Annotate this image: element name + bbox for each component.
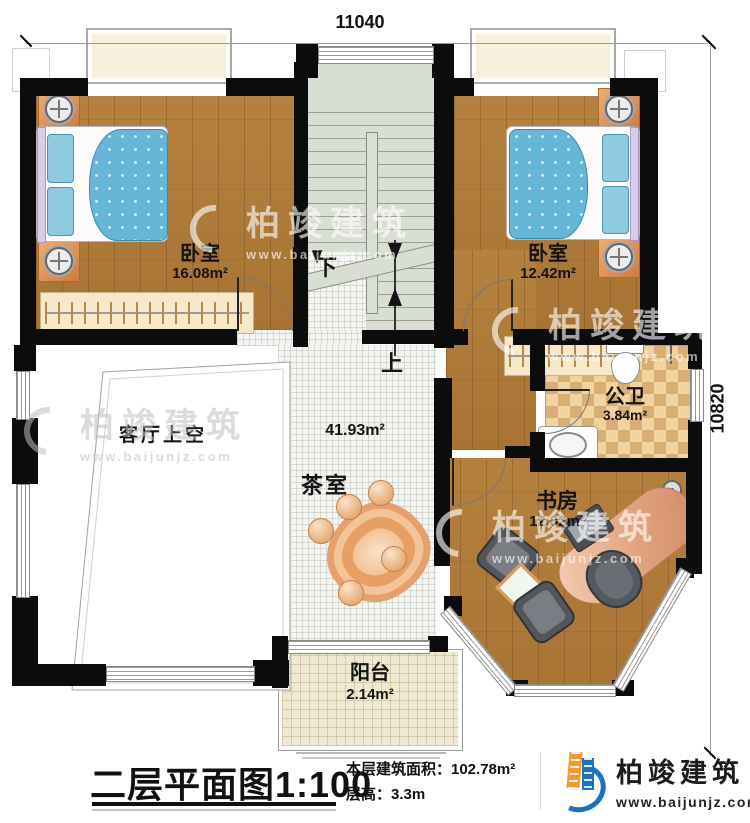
wall bbox=[434, 254, 454, 348]
wall bbox=[428, 636, 448, 652]
bed-duvet bbox=[509, 129, 588, 239]
bed-headboard bbox=[630, 127, 639, 241]
living-room-void-opening bbox=[70, 355, 300, 695]
wall bbox=[14, 345, 36, 371]
nightstand bbox=[38, 240, 80, 282]
wall bbox=[640, 78, 658, 338]
room-label-bathroom: 公卫 bbox=[585, 386, 665, 408]
bed-right bbox=[506, 126, 640, 240]
pillow bbox=[602, 134, 629, 182]
window bbox=[106, 666, 255, 682]
wall bbox=[12, 418, 38, 484]
logo-company-name: 柏竣建筑 bbox=[616, 751, 750, 790]
wall bbox=[12, 664, 106, 686]
logo-website: www.baijunjz.com bbox=[616, 794, 750, 810]
room-area-bedroom-left: 16.08m² bbox=[150, 266, 250, 283]
arrow-down-icon bbox=[388, 243, 402, 261]
room-label-study: 书房 bbox=[512, 490, 602, 513]
wall bbox=[686, 458, 702, 574]
company-logo-icon bbox=[554, 750, 608, 808]
shower-hose bbox=[670, 344, 672, 364]
wall bbox=[434, 378, 452, 454]
room-label-tea-room: 茶室 bbox=[280, 474, 370, 498]
wall bbox=[294, 62, 308, 254]
lamp-icon bbox=[45, 95, 73, 123]
bed-headboard bbox=[37, 127, 46, 243]
room-area-tea-room: 41.93m² bbox=[300, 422, 410, 440]
bay-window-right bbox=[470, 28, 616, 84]
wall bbox=[12, 596, 38, 666]
plan-title-text: 二层平面图 bbox=[90, 756, 275, 808]
floor-area-text: 本层建筑面积：102.78m² bbox=[346, 758, 515, 779]
wall bbox=[20, 329, 237, 345]
wall bbox=[530, 345, 545, 391]
wall bbox=[434, 62, 454, 254]
bed-left bbox=[36, 126, 168, 242]
stool bbox=[368, 480, 394, 506]
window bbox=[16, 484, 30, 598]
room-area-bedroom-right: 12.42m² bbox=[498, 266, 598, 283]
logo-building-blue-icon bbox=[582, 758, 594, 790]
bed-duvet bbox=[89, 129, 168, 241]
bay-window-left bbox=[86, 28, 232, 84]
dimension-height: 10820 bbox=[708, 379, 729, 439]
arrow-up-icon bbox=[388, 288, 402, 306]
wall bbox=[688, 420, 702, 462]
floor-height-text: 层高：3.3m bbox=[346, 783, 425, 804]
stool bbox=[338, 580, 364, 606]
logo-divider bbox=[540, 752, 541, 810]
stair-window-pier bbox=[432, 44, 454, 78]
lamp-icon bbox=[45, 247, 73, 275]
dimension-line-top bbox=[26, 43, 708, 44]
plan-title: 二层平面图1:100 bbox=[90, 756, 372, 808]
wall bbox=[20, 78, 36, 346]
wall bbox=[688, 333, 702, 369]
room-label-balcony: 阳台 bbox=[315, 662, 425, 684]
wardrobe bbox=[40, 292, 254, 334]
pillow bbox=[602, 186, 629, 234]
stair-rail bbox=[366, 132, 378, 314]
lamp-icon bbox=[605, 95, 633, 123]
room-label-bedroom-left: 卧室 bbox=[150, 243, 250, 265]
wall bbox=[530, 333, 702, 345]
room-area-study: 12.82m² bbox=[512, 514, 602, 531]
nightstand bbox=[598, 236, 640, 278]
wall bbox=[434, 448, 450, 566]
pillow bbox=[47, 187, 74, 236]
wall bbox=[530, 432, 545, 460]
stair-up-label: 上 bbox=[372, 352, 412, 376]
room-area-bathroom: 3.84m² bbox=[585, 408, 665, 423]
dimension-tick bbox=[20, 35, 33, 48]
window bbox=[288, 640, 430, 654]
pillow bbox=[47, 134, 74, 183]
stool bbox=[308, 518, 334, 544]
floor-plan-drawing: 卧室 16.08m² 卧室 12.42m² 公卫 3.84m² 书房 12.82… bbox=[0, 0, 750, 823]
dimension-width: 11040 bbox=[300, 12, 420, 33]
window bbox=[16, 371, 30, 420]
title-underline-shadow bbox=[92, 809, 336, 811]
room-label-living-void: 客厅上空 bbox=[88, 426, 238, 447]
lamp-icon bbox=[605, 243, 633, 271]
stair-down-label: 下 bbox=[306, 256, 346, 280]
title-underline bbox=[92, 802, 336, 806]
step-line bbox=[296, 752, 446, 754]
window bbox=[690, 369, 704, 422]
room-label-bedroom-right: 卧室 bbox=[498, 243, 598, 265]
bay-window bbox=[514, 684, 616, 697]
wall bbox=[272, 636, 288, 688]
stair-window-pier bbox=[296, 44, 318, 78]
stool bbox=[381, 546, 407, 572]
room-area-balcony: 2.14m² bbox=[315, 687, 425, 704]
wall bbox=[226, 78, 304, 96]
window bbox=[318, 46, 434, 64]
wall bbox=[530, 458, 690, 472]
company-logo-text: 柏竣建筑 www.baijunjz.com bbox=[616, 751, 750, 810]
